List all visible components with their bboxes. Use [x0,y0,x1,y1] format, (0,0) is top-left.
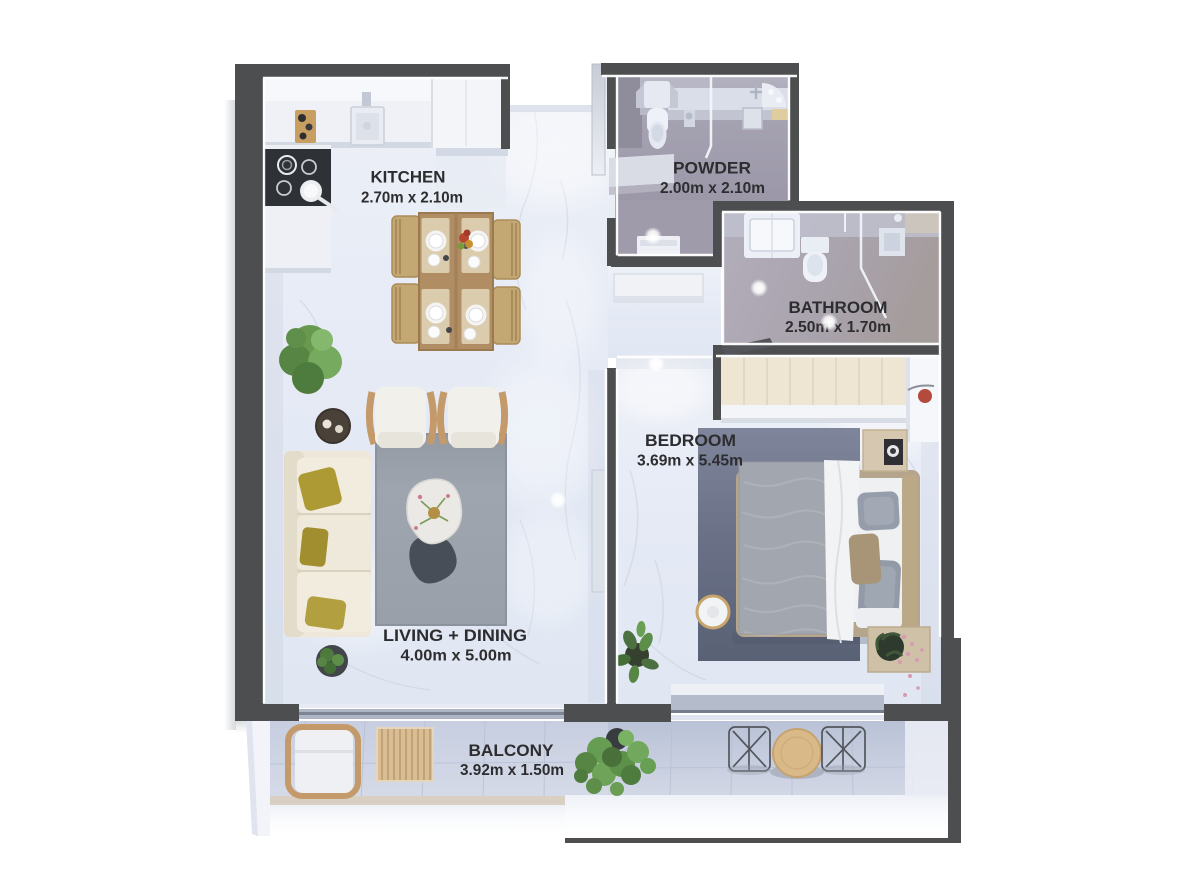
svg-text:BALCONY: BALCONY [469,742,554,760]
svg-text:BATHROOM: BATHROOM [789,299,888,317]
svg-text:2.50m x 1.70m: 2.50m x 1.70m [785,319,891,336]
svg-text:3.69m x 5.45m: 3.69m x 5.45m [637,453,743,470]
svg-text:LIVING + DINING: LIVING + DINING [383,627,527,645]
svg-text:2.70m x 2.10m: 2.70m x 2.10m [361,190,463,207]
svg-text:2.00m x 2.10m: 2.00m x 2.10m [660,180,765,197]
svg-text:KITCHEN: KITCHEN [371,169,446,187]
svg-text:3.92m x 1.50m: 3.92m x 1.50m [460,762,564,779]
svg-text:BEDROOM: BEDROOM [645,432,736,450]
svg-text:4.00m x 5.00m: 4.00m x 5.00m [401,648,512,665]
svg-text:POWDER: POWDER [673,160,751,178]
